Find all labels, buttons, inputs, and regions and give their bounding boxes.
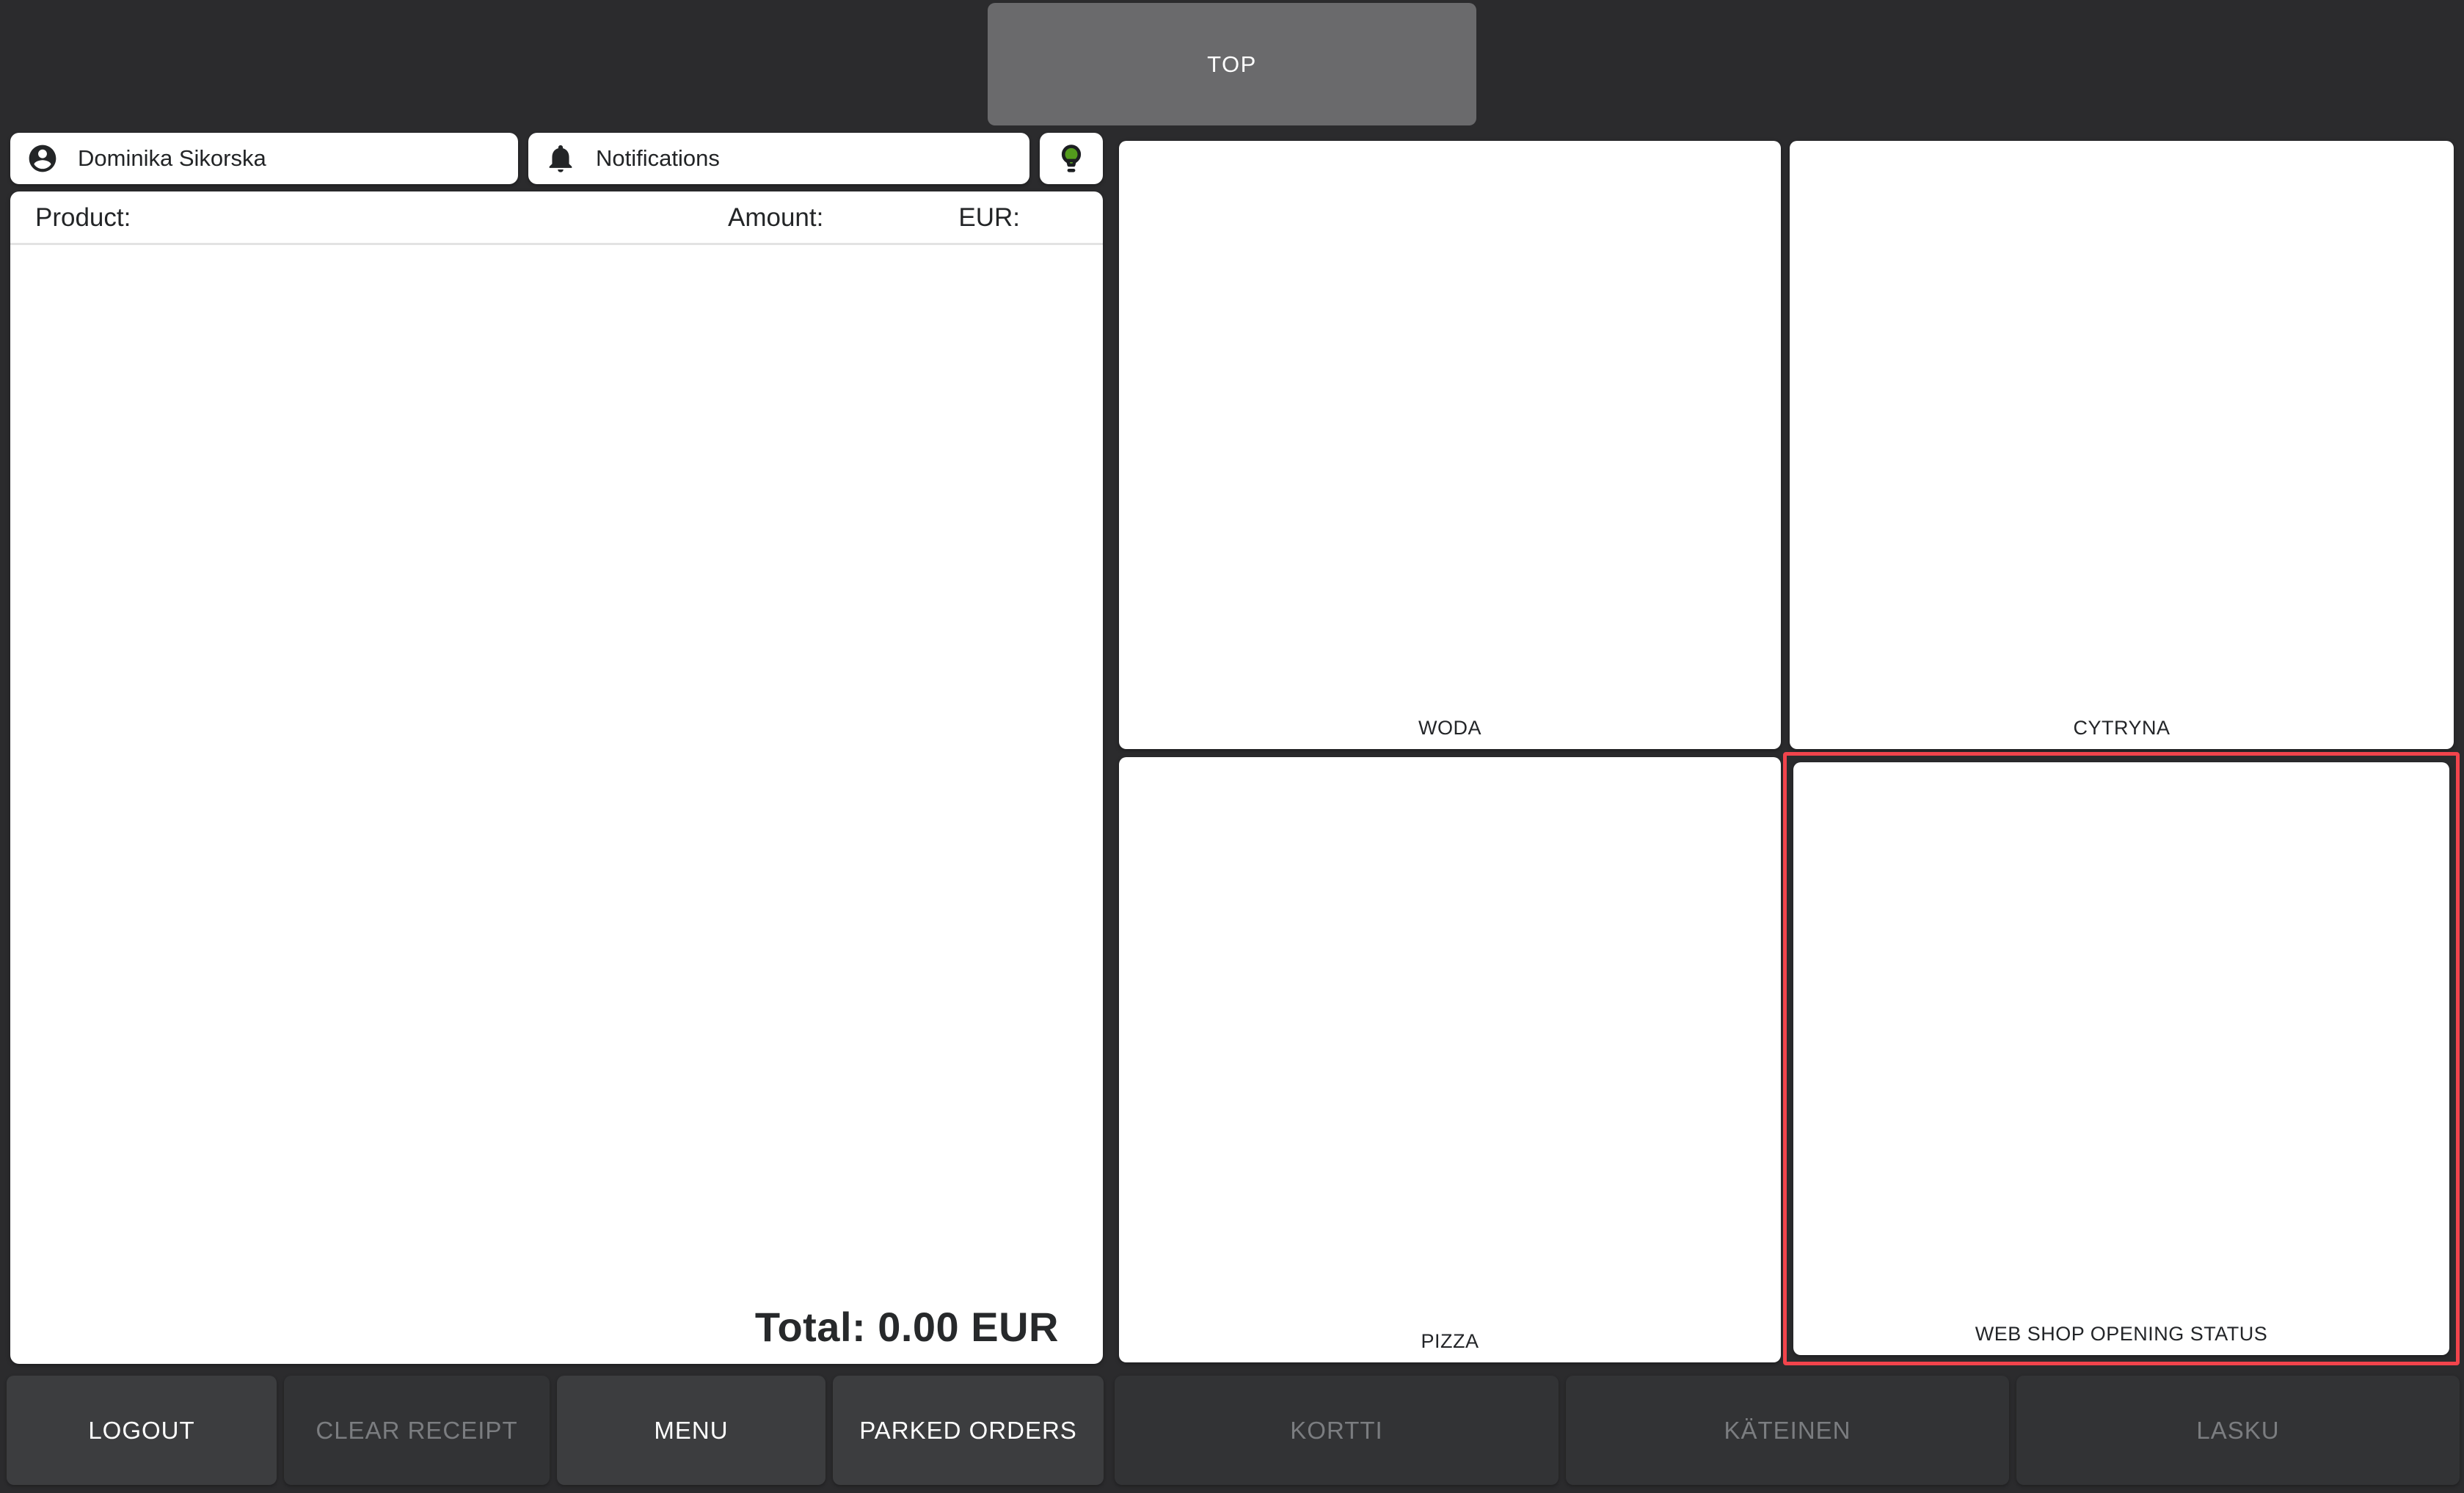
kortti-payment-button: KORTTI (1115, 1376, 1559, 1485)
receipt-column-product: Product: (35, 203, 131, 233)
notifications-button[interactable]: Notifications (528, 133, 1029, 184)
product-tile-web-shop-opening-status[interactable]: WEB SHOP OPENING STATUS (1783, 752, 2460, 1365)
current-user-button[interactable]: Dominika Sikorska (10, 133, 518, 184)
product-tile-label: WEB SHOP OPENING STATUS (1975, 1323, 2268, 1346)
product-tile-inner: WEB SHOP OPENING STATUS (1793, 762, 2449, 1355)
product-tile-pizza[interactable]: PIZZA (1119, 757, 1781, 1362)
current-user-name: Dominika Sikorska (78, 145, 266, 172)
receipt-items-list (10, 247, 1103, 1283)
lightbulb-icon (1054, 141, 1089, 176)
receipt-column-amount: Amount: (728, 203, 823, 233)
logout-button[interactable]: LOGOUT (7, 1376, 277, 1485)
account-circle-icon (26, 142, 59, 175)
receipt-column-headers: Product: Amount: EUR: (10, 191, 1103, 245)
receipt-column-eur: EUR: (958, 203, 1020, 233)
parked-orders-button[interactable]: PARKED ORDERS (833, 1376, 1104, 1485)
tips-button[interactable] (1040, 133, 1103, 184)
product-tile-label: PIZZA (1421, 1330, 1479, 1353)
notifications-label: Notifications (596, 145, 720, 172)
lasku-payment-button: LASKU (2016, 1376, 2460, 1485)
receipt-panel: Product: Amount: EUR: Total: 0.00 EUR (10, 191, 1103, 1364)
menu-button[interactable]: MENU (557, 1376, 825, 1485)
product-tile-cytryna[interactable]: CYTRYNA (1790, 141, 2454, 749)
clear-receipt-button: CLEAR RECEIPT (284, 1376, 550, 1485)
bell-icon (544, 142, 577, 175)
kateinen-payment-button: KÄTEINEN (1566, 1376, 2009, 1485)
product-tile-label: WODA (1418, 717, 1481, 740)
receipt-total: Total: 0.00 EUR (755, 1303, 1059, 1351)
product-tile-label: CYTRYNA (2073, 717, 2170, 740)
top-category-button[interactable]: TOP (988, 3, 1476, 125)
product-tile-woda[interactable]: WODA (1119, 141, 1781, 749)
